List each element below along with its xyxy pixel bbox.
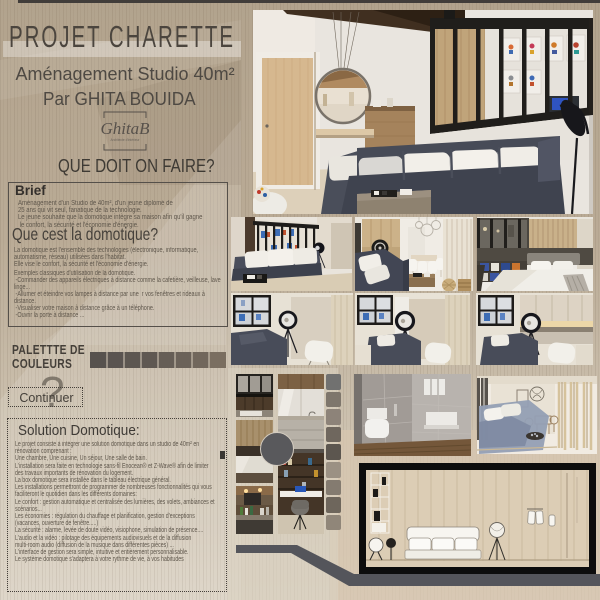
svg-text:GhitaB: GhitaB — [100, 119, 150, 138]
svg-text:Architecte d'intérieur: Architecte d'intérieur — [111, 138, 141, 142]
